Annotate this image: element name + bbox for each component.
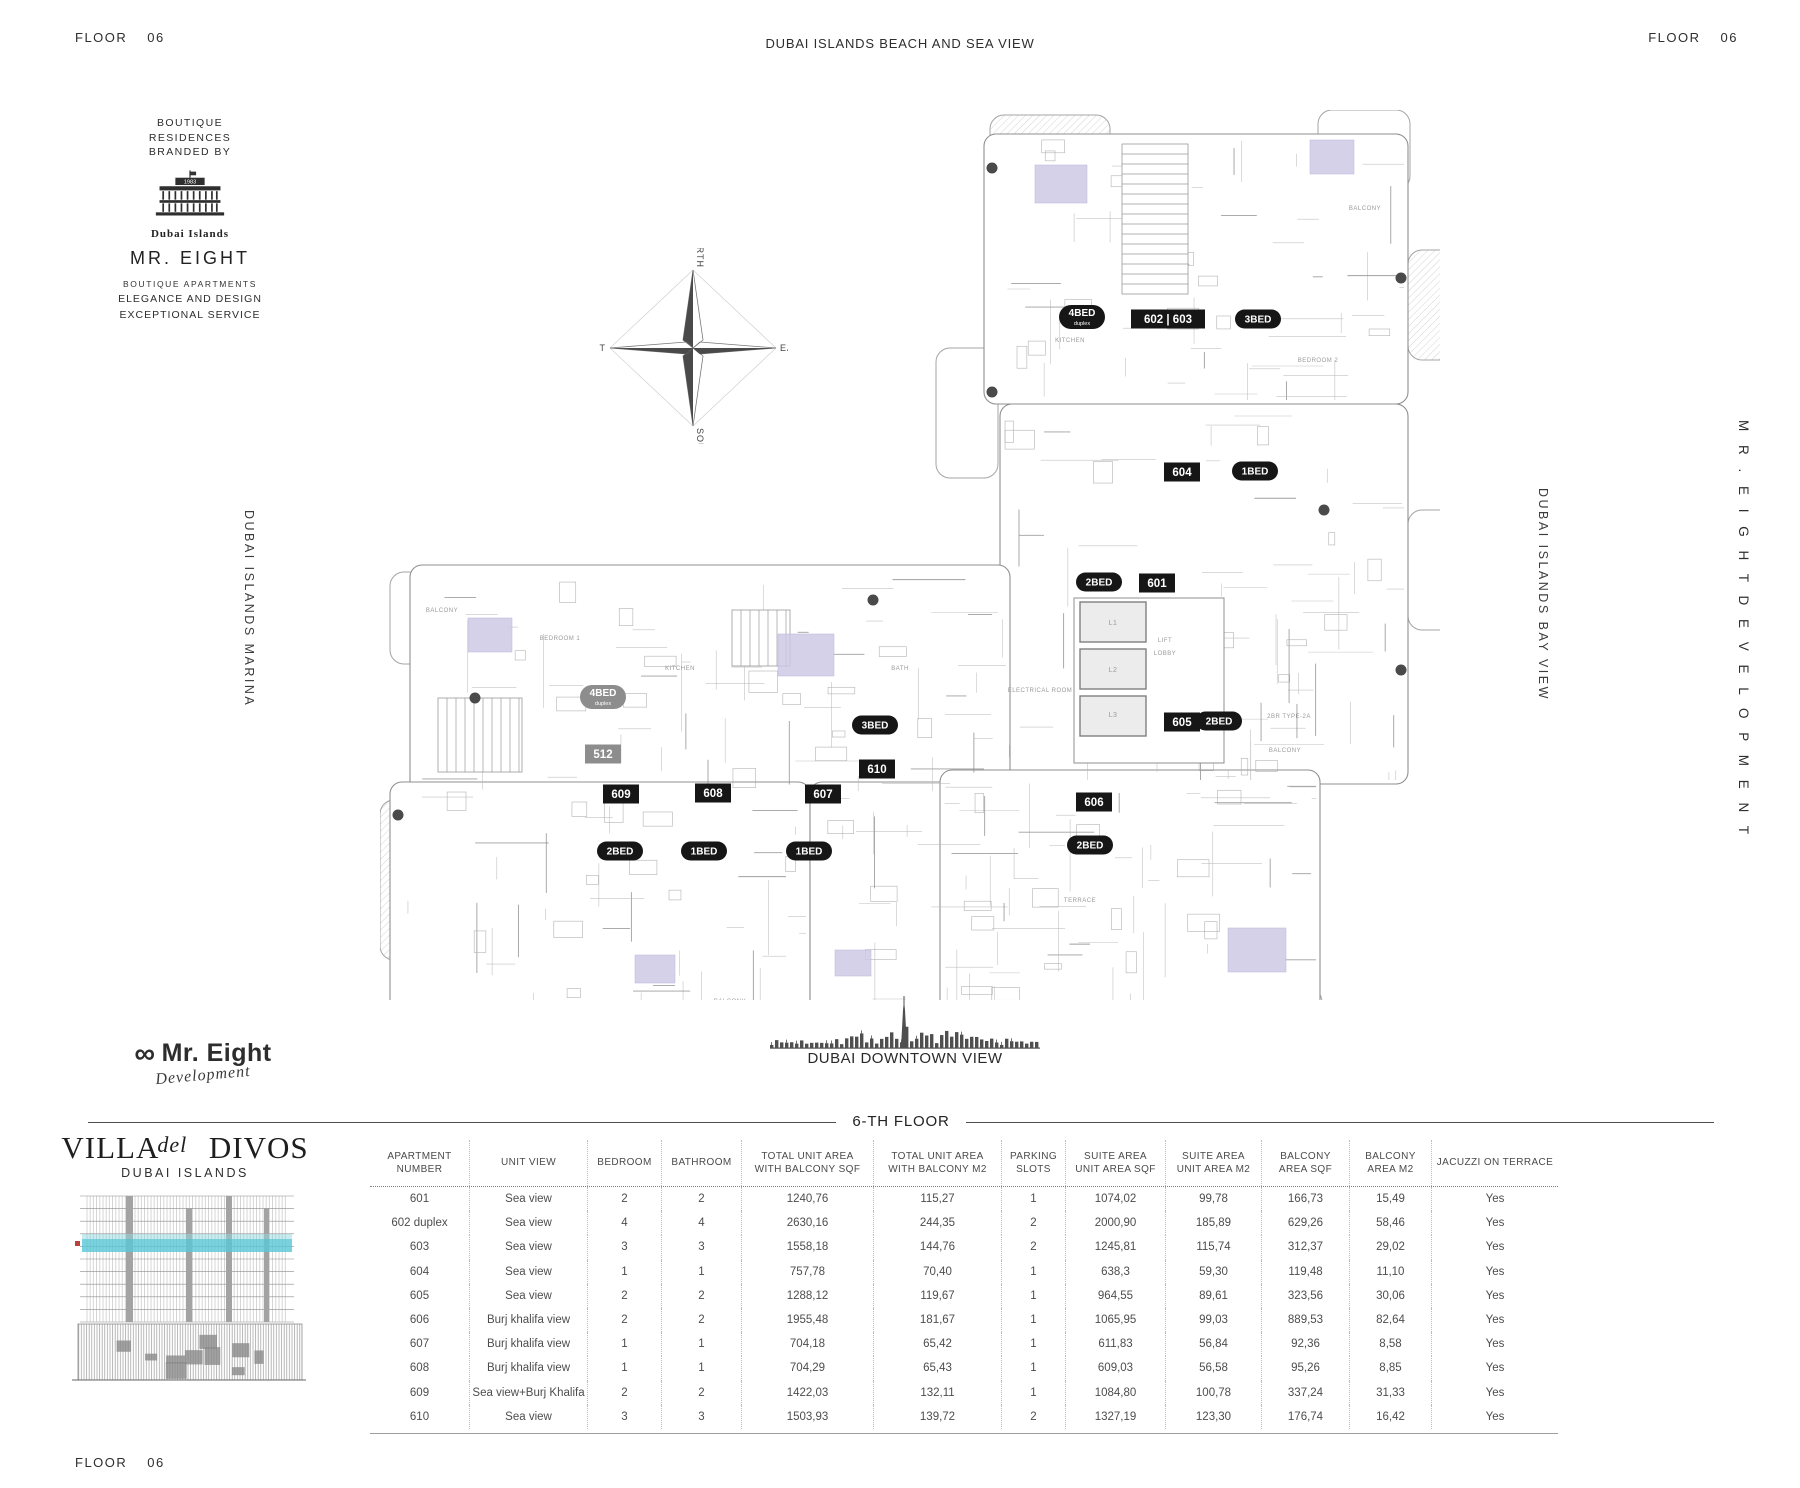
classical-building-icon: 1983 — [151, 170, 229, 222]
svg-text:duplex: duplex — [595, 701, 611, 707]
brand-tagline-1: BOUTIQUE APARTMENTS — [85, 279, 295, 289]
table-cell: 704,18 — [742, 1332, 874, 1356]
table-cell: 29,02 — [1350, 1235, 1432, 1259]
room-label: BALCONY — [714, 999, 746, 1000]
room-label: TERRACE — [1064, 898, 1096, 904]
room-label: BEDROOM 2 — [1298, 358, 1339, 364]
unit-label: 610 — [859, 760, 895, 779]
brand-block: BOUTIQUE RESIDENCES BRANDED BY 1983 — [85, 116, 295, 321]
svg-text:606: 606 — [1084, 797, 1103, 809]
footer-floor: FLOOR06 — [75, 1455, 165, 1470]
table-cell: 99,78 — [1166, 1187, 1262, 1211]
table-cell: 605 — [370, 1284, 470, 1308]
table-cell: 1558,18 — [742, 1235, 874, 1259]
table-cell: Yes — [1432, 1405, 1558, 1429]
table-cell: 611,83 — [1066, 1332, 1166, 1356]
table-cell: 1074,02 — [1066, 1187, 1166, 1211]
downtown-skyline — [770, 996, 1040, 1052]
table-cell: 601 — [370, 1187, 470, 1211]
table-cell: Yes — [1432, 1260, 1558, 1284]
table-cell: 30,06 — [1350, 1284, 1432, 1308]
table-cell: 2 — [1002, 1235, 1066, 1259]
table-cell: Sea view — [470, 1211, 588, 1235]
column-header: TOTAL UNIT AREAWITH BALCONY SQF — [742, 1140, 874, 1186]
table-cell: 82,64 — [1350, 1308, 1432, 1332]
table-cell: 2 — [662, 1284, 742, 1308]
table-cell: Yes — [1432, 1187, 1558, 1211]
unit-label: 608 — [695, 784, 731, 803]
table-cell: 132,11 — [874, 1381, 1002, 1405]
table-cell: 4 — [588, 1211, 662, 1235]
table-cell: 889,53 — [1262, 1308, 1350, 1332]
svg-text:1BED: 1BED — [691, 847, 718, 858]
table-cell: 3 — [588, 1235, 662, 1259]
table-cell: 1 — [1002, 1260, 1066, 1284]
table-cell: 1503,93 — [742, 1405, 874, 1429]
table-cell: 604 — [370, 1260, 470, 1284]
table-cell: 1 — [588, 1260, 662, 1284]
table-cell: 2000,90 — [1066, 1211, 1166, 1235]
unit-label: 2BED — [1076, 573, 1122, 592]
table-cell: 1065,95 — [1066, 1308, 1166, 1332]
room-label: BALCONY — [1349, 206, 1381, 212]
column-header: BALCONYAREA M2 — [1350, 1140, 1432, 1186]
table-row: 605Sea view221288,12119,671964,5589,6132… — [370, 1284, 1558, 1308]
unit-label: 1BED — [786, 842, 832, 861]
brand-tagline-2: ELEGANCE AND DESIGN — [85, 293, 295, 305]
svg-text:2BED: 2BED — [1206, 717, 1233, 728]
room-label: LIFT — [1158, 638, 1172, 644]
table-cell: 1288,12 — [742, 1284, 874, 1308]
room-label: BALCONY — [1269, 748, 1301, 754]
table-cell: Yes — [1432, 1356, 1558, 1380]
table-row: 610Sea view331503,93139,7221327,19123,30… — [370, 1405, 1558, 1429]
unit-label: 607 — [805, 785, 841, 804]
table-cell: 95,26 — [1262, 1356, 1350, 1380]
downtown-caption: DUBAI DOWNTOWN VIEW — [745, 1050, 1065, 1067]
table-cell: 65,43 — [874, 1356, 1002, 1380]
table-cell: 99,03 — [1166, 1308, 1262, 1332]
side-label-marina: DUBAI ISLANDS MARINA — [242, 510, 256, 707]
table-cell: 1084,80 — [1066, 1381, 1166, 1405]
table-cell: 3 — [662, 1235, 742, 1259]
svg-text:605: 605 — [1172, 717, 1192, 729]
svg-text:2BED: 2BED — [607, 847, 634, 858]
table-cell: Sea view — [470, 1235, 588, 1259]
table-cell: Burj khalifa view — [470, 1332, 588, 1356]
table-cell: 100,78 — [1166, 1381, 1262, 1405]
unit-label: 1BED — [681, 842, 727, 861]
table-cell: 607 — [370, 1332, 470, 1356]
table-cell: 3 — [588, 1405, 662, 1429]
table-cell: 704,29 — [742, 1356, 874, 1380]
header-floor-right: FLOOR06 — [1648, 30, 1738, 45]
room-label: 2BR TYPE-2A — [1267, 714, 1311, 720]
unit-label: 1BED — [1232, 462, 1278, 481]
table-cell: Sea view — [470, 1284, 588, 1308]
unit-label: 4BEDduplex — [580, 685, 626, 709]
brand-building-icon: 1983 Dubai Isl — [85, 170, 295, 240]
column-header: SUITE AREAUNIT AREA M2 — [1166, 1140, 1262, 1186]
table-cell: 608 — [370, 1356, 470, 1380]
table-cell: 323,56 — [1262, 1284, 1350, 1308]
table-cell: 181,67 — [874, 1308, 1002, 1332]
unit-label: 3BED — [1235, 310, 1281, 329]
table-cell: 1245,81 — [1066, 1235, 1166, 1259]
table-cell: 3 — [662, 1405, 742, 1429]
table-cell: 11,10 — [1350, 1260, 1432, 1284]
project-subtitle: DUBAI ISLANDS — [55, 1166, 315, 1180]
side-label-bay-view: DUBAI ISLANDS BAY VIEW — [1536, 488, 1550, 701]
unit-label: 604 — [1164, 463, 1200, 482]
table-cell: 757,78 — [742, 1260, 874, 1284]
unit-label: 512 — [585, 745, 621, 764]
svg-text:4BED: 4BED — [1069, 308, 1096, 319]
unit-label: 605 — [1164, 713, 1200, 732]
column-header: BATHROOM — [662, 1140, 742, 1186]
table-cell: 89,61 — [1166, 1284, 1262, 1308]
unit-label: 606 — [1076, 793, 1112, 812]
table-cell: 56,58 — [1166, 1356, 1262, 1380]
table-cell: 115,27 — [874, 1187, 1002, 1211]
unit-label: 601 — [1139, 574, 1175, 593]
column-header: UNIT VIEW — [470, 1140, 588, 1186]
svg-text:1983: 1983 — [184, 179, 196, 185]
table-cell: 312,37 — [1262, 1235, 1350, 1259]
table-cell: 1 — [1002, 1332, 1066, 1356]
unit-label: 3BED — [852, 716, 898, 735]
brand-name: MR. EIGHT — [85, 248, 295, 269]
building-elevation — [70, 1192, 308, 1417]
room-label: BEDROOM 1 — [540, 636, 581, 642]
table-cell: 609,03 — [1066, 1356, 1166, 1380]
svg-text:1BED: 1BED — [1242, 467, 1269, 478]
table-cell: 56,84 — [1166, 1332, 1262, 1356]
table-cell: 1 — [662, 1332, 742, 1356]
column-header: SUITE AREAUNIT AREA SQF — [1066, 1140, 1166, 1186]
table-cell: 4 — [662, 1211, 742, 1235]
table-cell: 2630,16 — [742, 1211, 874, 1235]
svg-text:1BED: 1BED — [796, 847, 823, 858]
table-cell: 1955,48 — [742, 1308, 874, 1332]
unit-label: 2BED — [1196, 712, 1242, 731]
table-cell: 2 — [588, 1381, 662, 1405]
table-cell: 8,85 — [1350, 1356, 1432, 1380]
unit-label: 2BED — [597, 842, 643, 861]
table-cell: 119,67 — [874, 1284, 1002, 1308]
table-cell: 15,49 — [1350, 1187, 1432, 1211]
unit-table: APARTMENTNUMBERUNIT VIEWBEDROOMBATHROOMT… — [370, 1140, 1558, 1434]
column-header: APARTMENTNUMBER — [370, 1140, 470, 1186]
unit-label: 602 | 603 — [1131, 310, 1205, 329]
svg-text:3BED: 3BED — [862, 721, 889, 732]
table-cell: 629,26 — [1262, 1211, 1350, 1235]
table-cell: 2 — [662, 1187, 742, 1211]
infinity-icon: ∞ — [134, 1038, 155, 1070]
project-logo: VILLA DIVOS del DUBAI ISLANDS — [55, 1130, 315, 1180]
table-cell: 144,76 — [874, 1235, 1002, 1259]
table-cell: 31,33 — [1350, 1381, 1432, 1405]
table-cell: 166,73 — [1262, 1187, 1350, 1211]
table-cell: 603 — [370, 1235, 470, 1259]
column-header: TOTAL UNIT AREAWITH BALCONY M2 — [874, 1140, 1002, 1186]
table-body: 601Sea view221240,76115,2711074,0299,781… — [370, 1187, 1558, 1434]
table-row: 609Sea view+Burj Khalifa221422,03132,111… — [370, 1381, 1558, 1405]
svg-text:4BED: 4BED — [590, 688, 617, 699]
svg-text:2BED: 2BED — [1077, 841, 1104, 852]
table-cell: 16,42 — [1350, 1405, 1432, 1429]
project-title-script: del — [157, 1132, 187, 1158]
table-cell: Sea view — [470, 1260, 588, 1284]
svg-text:609: 609 — [611, 789, 630, 801]
table-cell: 1 — [662, 1260, 742, 1284]
svg-text:3BED: 3BED — [1245, 315, 1272, 326]
table-cell: 638,3 — [1066, 1260, 1166, 1284]
table-cell: 602 duplex — [370, 1211, 470, 1235]
brochure-page: FLOOR06 DUBAI ISLANDS BEACH AND SEA VIEW… — [0, 0, 1800, 1488]
table-cell: 59,30 — [1166, 1260, 1262, 1284]
svg-text:607: 607 — [813, 789, 832, 801]
table-cell: Yes — [1432, 1308, 1558, 1332]
floor-plan: LIFTLOBBYL1L2L32BR TYPE-2AELECTRICAL ROO… — [380, 110, 1440, 1000]
table-cell: 92,36 — [1262, 1332, 1350, 1356]
column-header: JACUZZI ON TERRACE — [1432, 1140, 1558, 1186]
table-cell: 606 — [370, 1308, 470, 1332]
table-cell: Sea view+Burj Khalifa — [470, 1381, 588, 1405]
unit-label: 2BED — [1067, 836, 1113, 855]
table-cell: 8,58 — [1350, 1332, 1432, 1356]
table-cell: 609 — [370, 1381, 470, 1405]
table-cell: 176,74 — [1262, 1405, 1350, 1429]
column-header: BEDROOM — [588, 1140, 662, 1186]
table-cell: 1 — [588, 1356, 662, 1380]
unit-label: 4BEDduplex — [1059, 305, 1105, 329]
table-cell: 2 — [588, 1187, 662, 1211]
svg-text:604: 604 — [1172, 467, 1192, 479]
table-header-row: APARTMENTNUMBERUNIT VIEWBEDROOMBATHROOMT… — [370, 1140, 1558, 1187]
table-cell: 65,42 — [874, 1332, 1002, 1356]
svg-text:duplex: duplex — [1074, 321, 1090, 327]
table-cell: 337,24 — [1262, 1381, 1350, 1405]
table-cell: Burj khalifa view — [470, 1308, 588, 1332]
table-cell: 1 — [662, 1356, 742, 1380]
svg-text:601: 601 — [1147, 578, 1167, 590]
page-title: DUBAI ISLANDS BEACH AND SEA VIEW — [0, 36, 1800, 51]
table-row: 608Burj khalifa view11704,2965,431609,03… — [370, 1356, 1558, 1380]
brand-intro: BOUTIQUE RESIDENCES BRANDED BY — [85, 116, 295, 160]
svg-text:610: 610 — [867, 764, 886, 776]
table-cell: 1 — [1002, 1187, 1066, 1211]
project-title: VILLA DIVOS del — [61, 1130, 308, 1166]
section-title: 6-TH FLOOR — [88, 1113, 1714, 1131]
table-cell: 119,48 — [1262, 1260, 1350, 1284]
developer-logo: ∞Mr. Eight Development — [88, 1038, 318, 1085]
room-label: LOBBY — [1154, 651, 1177, 657]
table-cell: Yes — [1432, 1235, 1558, 1259]
room-label: L2 — [1109, 667, 1118, 674]
table-cell: Yes — [1432, 1211, 1558, 1235]
table-cell: 1 — [1002, 1308, 1066, 1332]
table-cell: Sea view — [470, 1187, 588, 1211]
table-cell: Yes — [1432, 1332, 1558, 1356]
table-cell: 1240,76 — [742, 1187, 874, 1211]
table-row: 601Sea view221240,76115,2711074,0299,781… — [370, 1187, 1558, 1211]
table-cell: 58,46 — [1350, 1211, 1432, 1235]
table-cell: Burj khalifa view — [470, 1356, 588, 1380]
table-cell: Yes — [1432, 1381, 1558, 1405]
table-cell: 1 — [1002, 1356, 1066, 1380]
table-cell: Yes — [1432, 1284, 1558, 1308]
table-cell: 139,72 — [874, 1405, 1002, 1429]
column-header: PARKINGSLOTS — [1002, 1140, 1066, 1186]
room-label: ELECTRICAL ROOM — [1008, 688, 1073, 694]
table-cell: 2 — [588, 1308, 662, 1332]
table-cell: 2 — [1002, 1405, 1066, 1429]
table-cell: 2 — [588, 1284, 662, 1308]
unit-label: 609 — [603, 785, 639, 804]
room-label: KITCHEN — [665, 666, 695, 672]
column-header: BALCONYAREA SQF — [1262, 1140, 1350, 1186]
table-row: 603Sea view331558,18144,7621245,81115,74… — [370, 1235, 1558, 1259]
table-row: 607Burj khalifa view11704,1865,421611,83… — [370, 1332, 1558, 1356]
room-label: BALCONY — [426, 608, 458, 614]
table-cell: 1327,19 — [1066, 1405, 1166, 1429]
svg-text:2BED: 2BED — [1086, 578, 1113, 589]
table-cell: 2 — [662, 1308, 742, 1332]
svg-text:602 | 603: 602 | 603 — [1144, 314, 1192, 326]
table-cell: 1 — [1002, 1381, 1066, 1405]
table-cell: 964,55 — [1066, 1284, 1166, 1308]
room-label: KITCHEN — [1055, 338, 1085, 344]
table-row: 606Burj khalifa view221955,48181,6711065… — [370, 1308, 1558, 1332]
table-row: 602 duplexSea view442630,16244,3522000,9… — [370, 1211, 1558, 1235]
room-label: L3 — [1109, 712, 1118, 719]
table-cell: Sea view — [470, 1405, 588, 1429]
room-label: BATH — [891, 666, 909, 672]
table-cell: 70,40 — [874, 1260, 1002, 1284]
table-cell: 244,35 — [874, 1211, 1002, 1235]
brand-logo-caption: Dubai Islands — [85, 228, 295, 240]
table-cell: 185,89 — [1166, 1211, 1262, 1235]
brand-tagline-3: EXCEPTIONAL SERVICE — [85, 309, 295, 321]
table-cell: 2 — [662, 1381, 742, 1405]
svg-text:512: 512 — [593, 749, 612, 761]
table-cell: 1 — [588, 1332, 662, 1356]
table-cell: 2 — [1002, 1211, 1066, 1235]
table-cell: 610 — [370, 1405, 470, 1429]
table-cell: 115,74 — [1166, 1235, 1262, 1259]
table-row: 604Sea view11757,7870,401638,359,30119,4… — [370, 1260, 1558, 1284]
side-label-development: M R . E I G H T D E V E L O P M E N T — [1736, 420, 1751, 839]
room-label: L1 — [1109, 620, 1118, 627]
table-cell: 1 — [1002, 1284, 1066, 1308]
table-cell: 123,30 — [1166, 1405, 1262, 1429]
table-cell: 1422,03 — [742, 1381, 874, 1405]
svg-text:608: 608 — [703, 788, 723, 800]
